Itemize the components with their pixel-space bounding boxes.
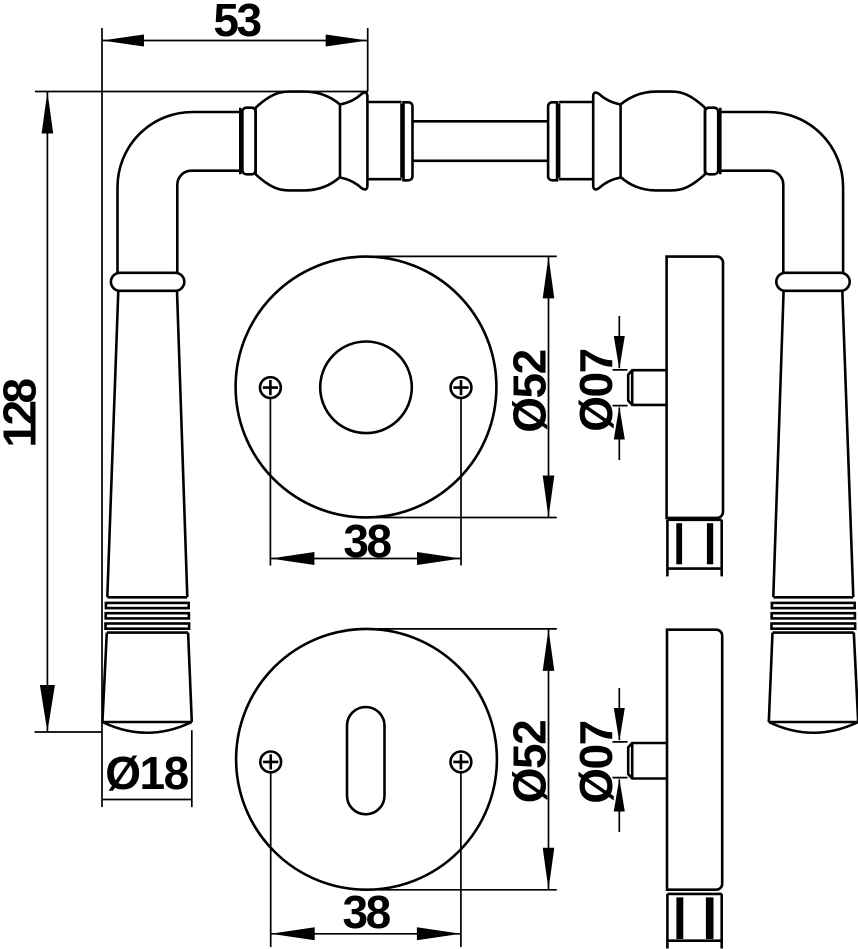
svg-text:Ø52: Ø52 bbox=[504, 350, 556, 432]
svg-text:Ø18: Ø18 bbox=[105, 747, 188, 799]
svg-text:Ø07: Ø07 bbox=[570, 721, 622, 803]
svg-text:38: 38 bbox=[343, 515, 391, 567]
svg-text:38: 38 bbox=[343, 886, 391, 938]
svg-text:53: 53 bbox=[213, 0, 260, 46]
svg-text:128: 128 bbox=[0, 378, 45, 447]
svg-text:Ø52: Ø52 bbox=[504, 721, 556, 803]
svg-text:Ø07: Ø07 bbox=[570, 349, 622, 431]
